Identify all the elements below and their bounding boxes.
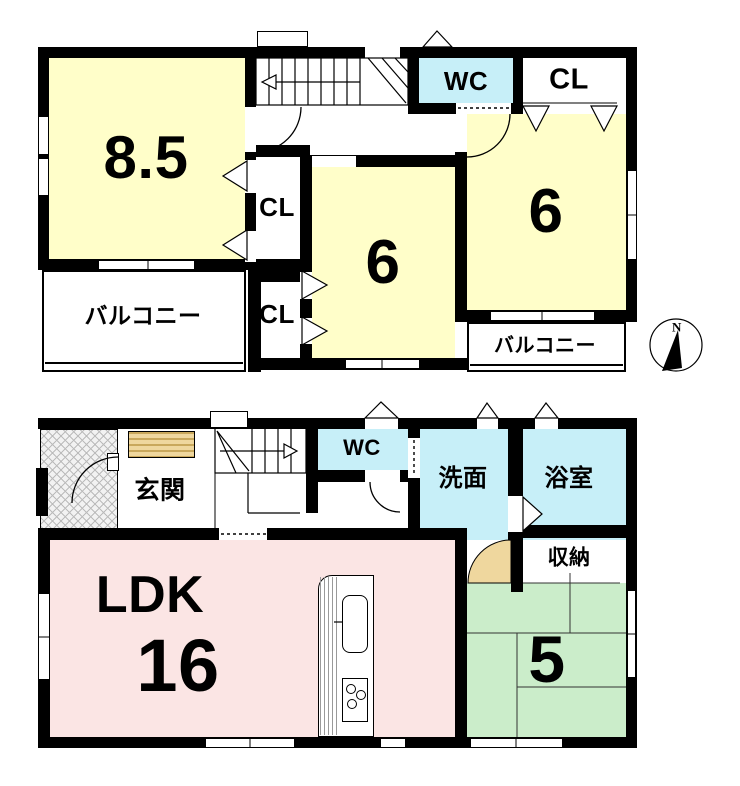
- closet-opening: [300, 318, 312, 344]
- window: [210, 411, 248, 428]
- window: [490, 311, 595, 321]
- door-opening: [508, 496, 523, 532]
- passage-opening: [219, 528, 267, 540]
- entrance-step: [128, 431, 195, 458]
- window: [345, 359, 420, 369]
- window: [470, 738, 563, 748]
- door-arc-wc-1f: [370, 482, 400, 512]
- closet-opening: [300, 272, 312, 299]
- kitchen-sink: [342, 595, 368, 653]
- wall: [513, 47, 523, 103]
- stairs-1f: [215, 428, 306, 513]
- stairs-arrow-2f: [262, 75, 276, 89]
- door-opening: [245, 107, 256, 152]
- vent-slot: [365, 418, 398, 429]
- wc-2f-label: WC: [444, 68, 488, 94]
- storage-label: 収納: [548, 548, 591, 569]
- closet-opening: [245, 160, 256, 193]
- closet-opening: [245, 231, 256, 262]
- wall: [455, 152, 467, 322]
- balcony-west-label: バルコニー: [84, 305, 201, 328]
- window: [98, 260, 195, 270]
- wall: [306, 418, 318, 513]
- compass-north-label: N: [672, 321, 682, 334]
- vent-icon: [365, 402, 398, 418]
- window: [627, 590, 636, 678]
- vent-slot: [477, 418, 498, 429]
- window: [380, 738, 406, 748]
- tatami-room-label: 5: [528, 626, 565, 692]
- tatami-room-door-swing: [468, 540, 511, 583]
- window: [38, 593, 50, 680]
- closet-low-label: CL: [259, 301, 295, 327]
- wall: [511, 525, 637, 538]
- wall: [511, 535, 523, 592]
- window: [205, 738, 295, 748]
- kitchen-stove: [342, 678, 368, 722]
- wall: [306, 470, 420, 482]
- wall: [256, 145, 310, 157]
- room-6-center-label: 6: [366, 232, 401, 294]
- room-8_5-label: 8.5: [104, 128, 189, 188]
- window: [365, 44, 400, 58]
- kitchen-counter-stripes: [320, 577, 337, 735]
- bathroom-label: 浴室: [545, 467, 594, 491]
- stairs-arrow-1f: [284, 444, 297, 458]
- floor-plan: 8.5 WC CL 6 CL 6 CL バルコニー バルコニー N 玄関 WC …: [0, 0, 740, 786]
- vent-icon: [535, 403, 558, 418]
- vent-slot: [535, 418, 558, 429]
- balcony-west-rail-line: [45, 362, 243, 364]
- window: [627, 170, 637, 260]
- wall: [455, 528, 467, 748]
- compass-needle-icon: [662, 330, 682, 371]
- sliding-door-opening: [408, 438, 420, 478]
- washroom-label: 洗面: [439, 467, 488, 491]
- wall: [248, 358, 310, 370]
- door-opening: [365, 470, 400, 482]
- closet-top-label: CL: [549, 66, 589, 95]
- balcony-east-rail-line: [470, 364, 623, 366]
- entrance-door-leaf: [107, 453, 119, 471]
- dormer-vent: [257, 31, 308, 47]
- wall: [626, 418, 637, 748]
- wc-1f-label: WC: [343, 437, 381, 459]
- vent-icon: [477, 403, 498, 418]
- wall: [36, 468, 48, 516]
- ldk-label: LDK: [96, 569, 204, 621]
- ldk-size-label: 16: [136, 629, 219, 703]
- door-opening: [456, 103, 511, 114]
- entrance-label: 玄関: [134, 479, 185, 504]
- window: [38, 158, 49, 196]
- wall: [408, 58, 419, 103]
- vent-icon: [423, 31, 452, 47]
- window: [38, 116, 49, 155]
- balcony-east-label: バルコニー: [494, 336, 596, 356]
- room-6-east-label: 6: [529, 181, 564, 243]
- stairs-2f: [256, 58, 408, 105]
- door-opening: [312, 156, 356, 167]
- wall: [38, 47, 637, 58]
- closet-mid-label: CL: [259, 194, 295, 220]
